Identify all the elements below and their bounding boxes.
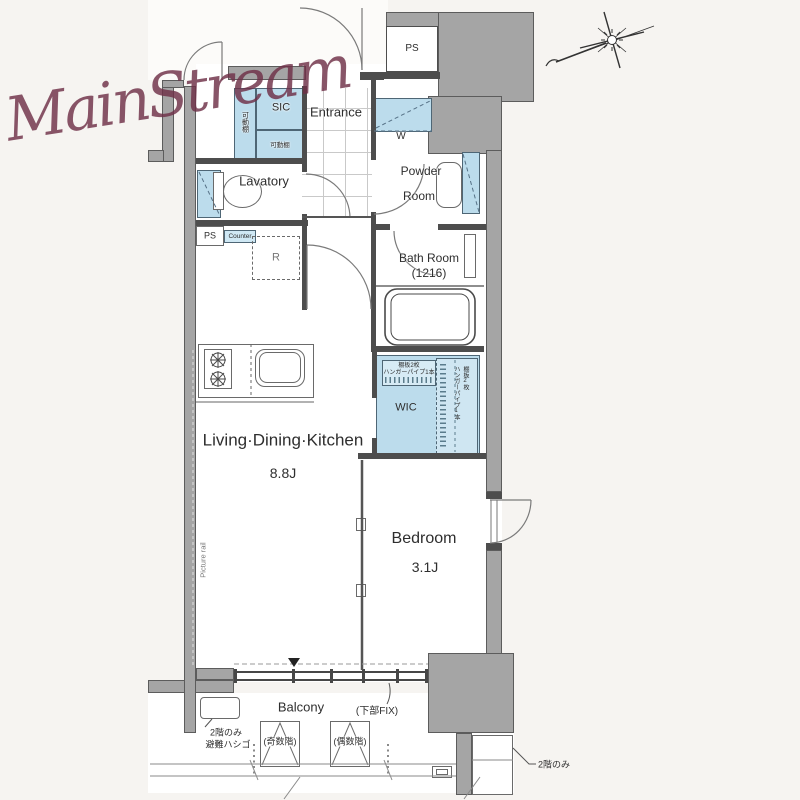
ldk-size-label: 8.8J	[270, 466, 296, 480]
bedroom-window-lines	[491, 500, 497, 542]
counter-label: Counter	[228, 234, 251, 241]
balcony-label: Balcony	[278, 701, 324, 714]
leader-lines	[205, 683, 536, 764]
bathtub	[376, 286, 484, 345]
wic-note-line2: ハンガーパイプ1本	[383, 370, 434, 376]
wic-label: WIC	[395, 403, 416, 414]
balcony-access-marker	[288, 658, 300, 667]
powder-room-label-2: Room	[403, 190, 435, 202]
bath-room-label-1: Bath Room	[399, 252, 459, 264]
escape-label-line2: 避難ハシゴ	[205, 741, 250, 750]
lavatory-label: Lavatory	[239, 175, 289, 188]
wic-side-note: 棚板2枚 ハンガーパイプ1本	[452, 366, 474, 454]
powder-room-label-1: Powder	[401, 165, 442, 177]
ps-top-label: PS	[405, 44, 418, 54]
floor-plan: Entrance SIC 可動棚 可動棚 Lavatory W Powder R…	[0, 0, 800, 800]
ldk-label: Living·Dining·Kitchen	[203, 432, 364, 449]
second-floor-only-label: 2階のみ	[538, 761, 570, 770]
balcony-edge-lines	[150, 760, 513, 799]
washer-label: W	[396, 132, 405, 142]
picture-rail-label: Picture rail	[199, 542, 207, 577]
wic-side-note-line2: ハンガーパイプ1本	[452, 366, 461, 454]
even-floors-label: (偶数階)	[334, 738, 367, 747]
balcony-partition-dots	[254, 744, 388, 777]
fridge-label: R	[272, 253, 280, 264]
entrance-label: Entrance	[310, 106, 362, 119]
escape-label-line1: 2階のみ	[210, 729, 242, 738]
stove-burners	[210, 352, 226, 387]
wic-side-note-line1: 棚板2枚	[461, 366, 470, 454]
bedroom-size-label: 3.1J	[412, 560, 438, 574]
wic-note-line1: 棚板2枚	[398, 363, 419, 369]
bedroom-label: Bedroom	[392, 531, 457, 547]
ps-left-label: PS	[204, 232, 216, 241]
lower-fix-label: (下部FIX)	[356, 707, 398, 717]
bath-room-label-2: (1216)	[412, 267, 447, 279]
sic-movable-shelf-label-2: 可動棚	[270, 143, 290, 150]
odd-floors-label: (奇数階)	[264, 738, 297, 747]
sparkle-decoration	[546, 12, 654, 68]
